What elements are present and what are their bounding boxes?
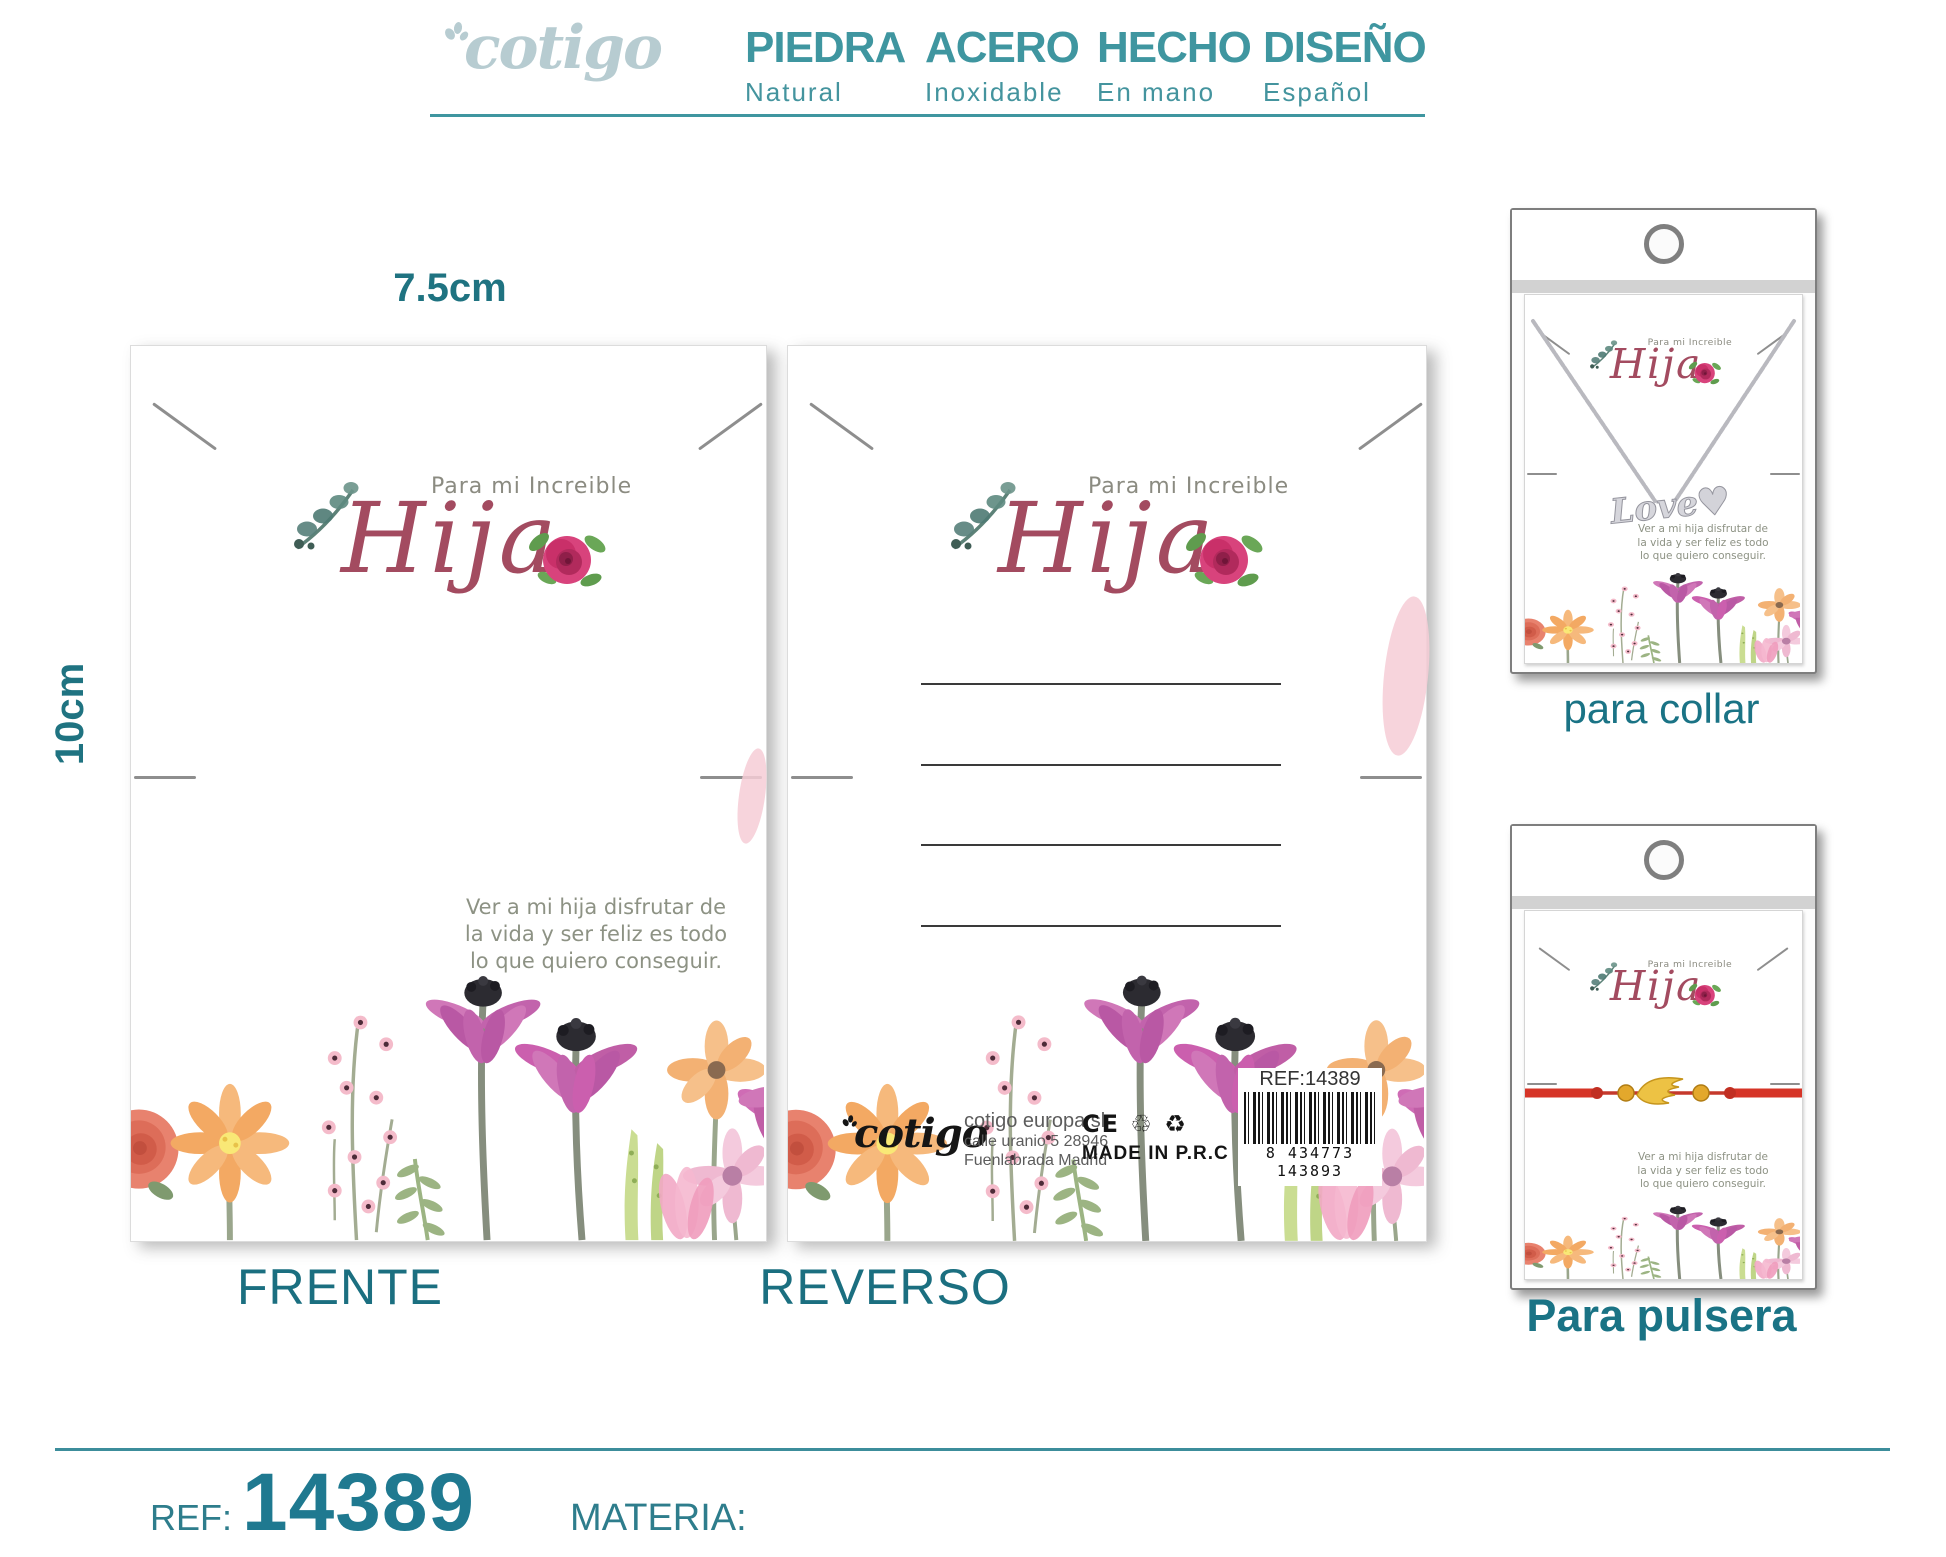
slit-top-right	[1757, 947, 1789, 971]
quote-line: Ver a mi hija disfrutar de	[1617, 1151, 1789, 1165]
header-divider	[430, 114, 1425, 117]
edge-petal	[732, 747, 771, 846]
card-quote: Ver a mi hija disfrutar de la vida y ser…	[1617, 1151, 1789, 1192]
brand-leaf-icon	[444, 20, 470, 46]
mini-card-pulsera: Para mi Increible Hija Ver a mi hija dis…	[1524, 910, 1803, 1280]
brand-logo-text: cotigo	[448, 13, 661, 83]
quote-line: la vida y ser feliz es todo	[431, 921, 761, 948]
back-branding: cotigo cotigo europa sl calle uranio 5 2…	[788, 346, 1426, 1241]
ref-value: 14389	[242, 1462, 475, 1544]
flower-meadow-art	[1525, 1183, 1800, 1279]
barcode-bars	[1244, 1092, 1376, 1144]
feature-subtitle: Natural	[745, 79, 905, 105]
package-pulsera: Para mi Increible Hija Ver a mi hija dis…	[1510, 824, 1817, 1290]
brand-logo: cotigo	[448, 18, 661, 78]
feature-title: ACERO	[925, 26, 1079, 70]
card-height-label: 10cm	[50, 634, 94, 794]
pulsera-caption: Para pulsera	[1488, 1293, 1835, 1338]
card-front: Para mi Increible Hija Ver a mi hija dis…	[130, 345, 767, 1242]
card-name: Hija	[341, 490, 561, 587]
bag-header	[1512, 826, 1815, 896]
slit-mid-left	[134, 776, 196, 779]
slit-top-right	[698, 402, 763, 450]
card-back: Para mi Increible Hija cotigo cotigo eur…	[787, 345, 1427, 1242]
back-label: REVERSO	[740, 1262, 1030, 1312]
slit-top-left	[1538, 947, 1570, 971]
feature-subtitle: En mano	[1097, 79, 1251, 105]
ref-label: REF:	[150, 1500, 232, 1536]
brand-leaf-icon	[842, 1114, 858, 1130]
feature-title: PIEDRA	[745, 26, 905, 70]
bag-header	[1512, 210, 1815, 280]
quote-line: lo que quiero conseguir.	[1617, 1178, 1789, 1192]
feature-hecho: HECHO En mano	[1097, 26, 1251, 105]
materia-label: MATERIA:	[570, 1499, 747, 1537]
hang-hole	[1644, 224, 1684, 264]
quote-line: lo que quiero conseguir.	[431, 948, 761, 975]
feature-title: HECHO	[1097, 26, 1251, 70]
card-quote: Ver a mi hija disfrutar de la vida y ser…	[431, 894, 761, 975]
quote-line: la vida y ser feliz es todo	[1617, 537, 1789, 551]
barcode-digits: 8 434773 143893	[1238, 1144, 1382, 1180]
hija-logo: Para mi Increible Hija	[1588, 959, 1739, 1022]
package-collar: Para mi Increible Hija Ver a mi hija dis…	[1510, 208, 1817, 674]
ce-recycle-icons: CE ♲ ♻	[1082, 1112, 1229, 1136]
made-in-label: MADE IN P.R.C	[1082, 1144, 1229, 1163]
barcode-ref: REF:14389	[1238, 1068, 1382, 1090]
catalog-sheet: cotigo PIEDRA Natural ACERO Inoxidable H…	[0, 0, 1946, 1557]
feature-subtitle: Inoxidable	[925, 79, 1079, 105]
feature-piedra: PIEDRA Natural	[745, 26, 905, 105]
footer: REF: 14389 MATERIA:	[150, 1462, 747, 1544]
rose-icon	[529, 520, 607, 598]
rose-icon	[1689, 978, 1722, 1011]
card-width-label: 7.5cm	[330, 268, 570, 308]
feature-title: DISEÑO	[1263, 26, 1426, 70]
feature-acero: ACERO Inoxidable	[925, 26, 1079, 105]
hang-hole	[1644, 840, 1684, 880]
quote-line: Ver a mi hija disfrutar de	[431, 894, 761, 921]
compliance-marks: CE ♲ ♻ MADE IN P.R.C	[1082, 1112, 1229, 1163]
feature-subtitle: Español	[1263, 79, 1426, 105]
heart-icon: ♥	[1694, 478, 1732, 525]
footer-divider	[55, 1448, 1890, 1451]
red-cord-bracelet	[1525, 1071, 1802, 1115]
front-label: FRENTE	[200, 1262, 480, 1312]
slit-top-left	[152, 402, 217, 450]
quote-line: lo que quiero conseguir.	[1617, 550, 1789, 564]
feature-diseno: DISEÑO Español	[1263, 26, 1426, 105]
bag-fold-band	[1512, 896, 1815, 909]
collar-caption: para collar	[1510, 688, 1813, 730]
hija-logo: Para mi Increible Hija	[289, 474, 649, 624]
mini-card-collar: Para mi Increible Hija Ver a mi hija dis…	[1524, 294, 1803, 664]
bag-fold-band	[1512, 280, 1815, 293]
barcode: REF:14389 8 434773 143893	[1238, 1068, 1382, 1186]
quote-line: la vida y ser feliz es todo	[1617, 1165, 1789, 1179]
